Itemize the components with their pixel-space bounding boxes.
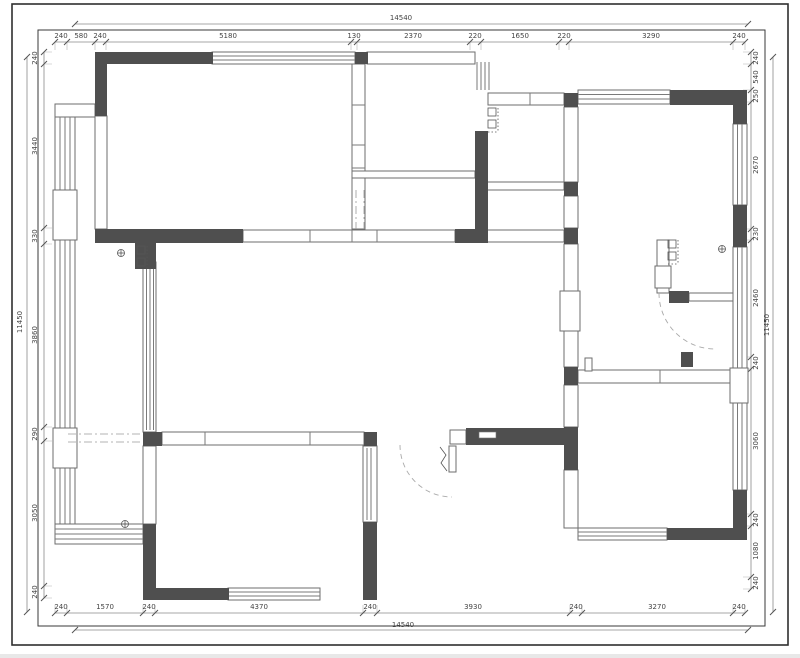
dim-bottom-overall: 14540 [72,621,751,633]
dim-label: 11450 [16,311,24,333]
dim-label: 11450 [763,314,771,336]
dim-label: 3050 [31,504,39,522]
dim-label: 5180 [219,32,237,40]
dim-label: 240 [752,356,760,369]
dim-label: 220 [468,32,481,40]
dim-label: 240 [93,32,106,40]
dim-label: 1570 [96,603,114,611]
dim-label: 3270 [648,603,666,611]
threshold-marker [479,432,496,438]
dim-label: 130 [347,32,360,40]
dim-label: 4370 [250,603,268,611]
dim-label: 3930 [464,603,482,611]
dim-label: 240 [54,603,67,611]
dim-label: 3860 [31,326,39,344]
dim-label: 2460 [752,289,760,307]
dim-label: 3060 [752,432,760,450]
dashdot-lines [68,190,364,442]
dim-label: 14540 [392,621,414,629]
dim-label: 240 [363,603,376,611]
dim-label: 2670 [752,156,760,174]
dim-left-overall: 11450 [16,54,30,615]
windows [53,52,747,600]
dim-label: 1650 [511,32,529,40]
dim-label: 290 [31,427,39,440]
dim-bottom-segments: 240 1570 240 4370 240 3930 240 3270 240 [52,603,748,616]
dim-top-overall: 14540 [72,14,751,27]
ceiling-symbol-icon [118,250,125,257]
dim-label: 240 [732,32,745,40]
dim-label: 240 [54,32,67,40]
panel-symbol-icon [488,108,498,132]
dim-label: 540 [752,70,760,83]
dim-label: 240 [31,585,39,598]
dim-label: 240 [142,603,155,611]
dim-label: 1080 [752,542,760,560]
ceiling-symbol-icon [122,521,129,528]
dim-label: 14540 [390,14,412,22]
ceiling-symbol-icon [719,246,726,253]
walls-solid [95,52,747,600]
dim-label: 2370 [404,32,422,40]
dim-label: 580 [74,32,87,40]
dim-label: 240 [732,603,745,611]
dim-label: 240 [31,51,39,64]
dim-label: 330 [31,229,39,242]
dim-label: 240 [752,576,760,589]
door-arcs [400,293,715,497]
entry-step-line [440,447,447,471]
dim-label: 230 [752,227,760,240]
dim-label: 250 [752,89,760,102]
floor-plan-drawing: 14540 240 580 240 5180 130 2370 220 1650… [0,0,800,654]
dim-label: 240 [752,513,760,526]
dim-label: 220 [557,32,570,40]
dim-label: 240 [752,51,760,64]
dim-label: 240 [569,603,582,611]
dim-top-segments: 240 580 240 5180 130 2370 220 1650 220 3… [52,32,748,50]
dim-label: 3290 [642,32,660,40]
dim-left-segments: 240 3440 330 3860 290 3050 240 [31,49,52,601]
dim-label: 3440 [31,137,39,155]
floor-plan-svg: 14540 240 580 240 5180 130 2370 220 1650… [0,0,800,654]
